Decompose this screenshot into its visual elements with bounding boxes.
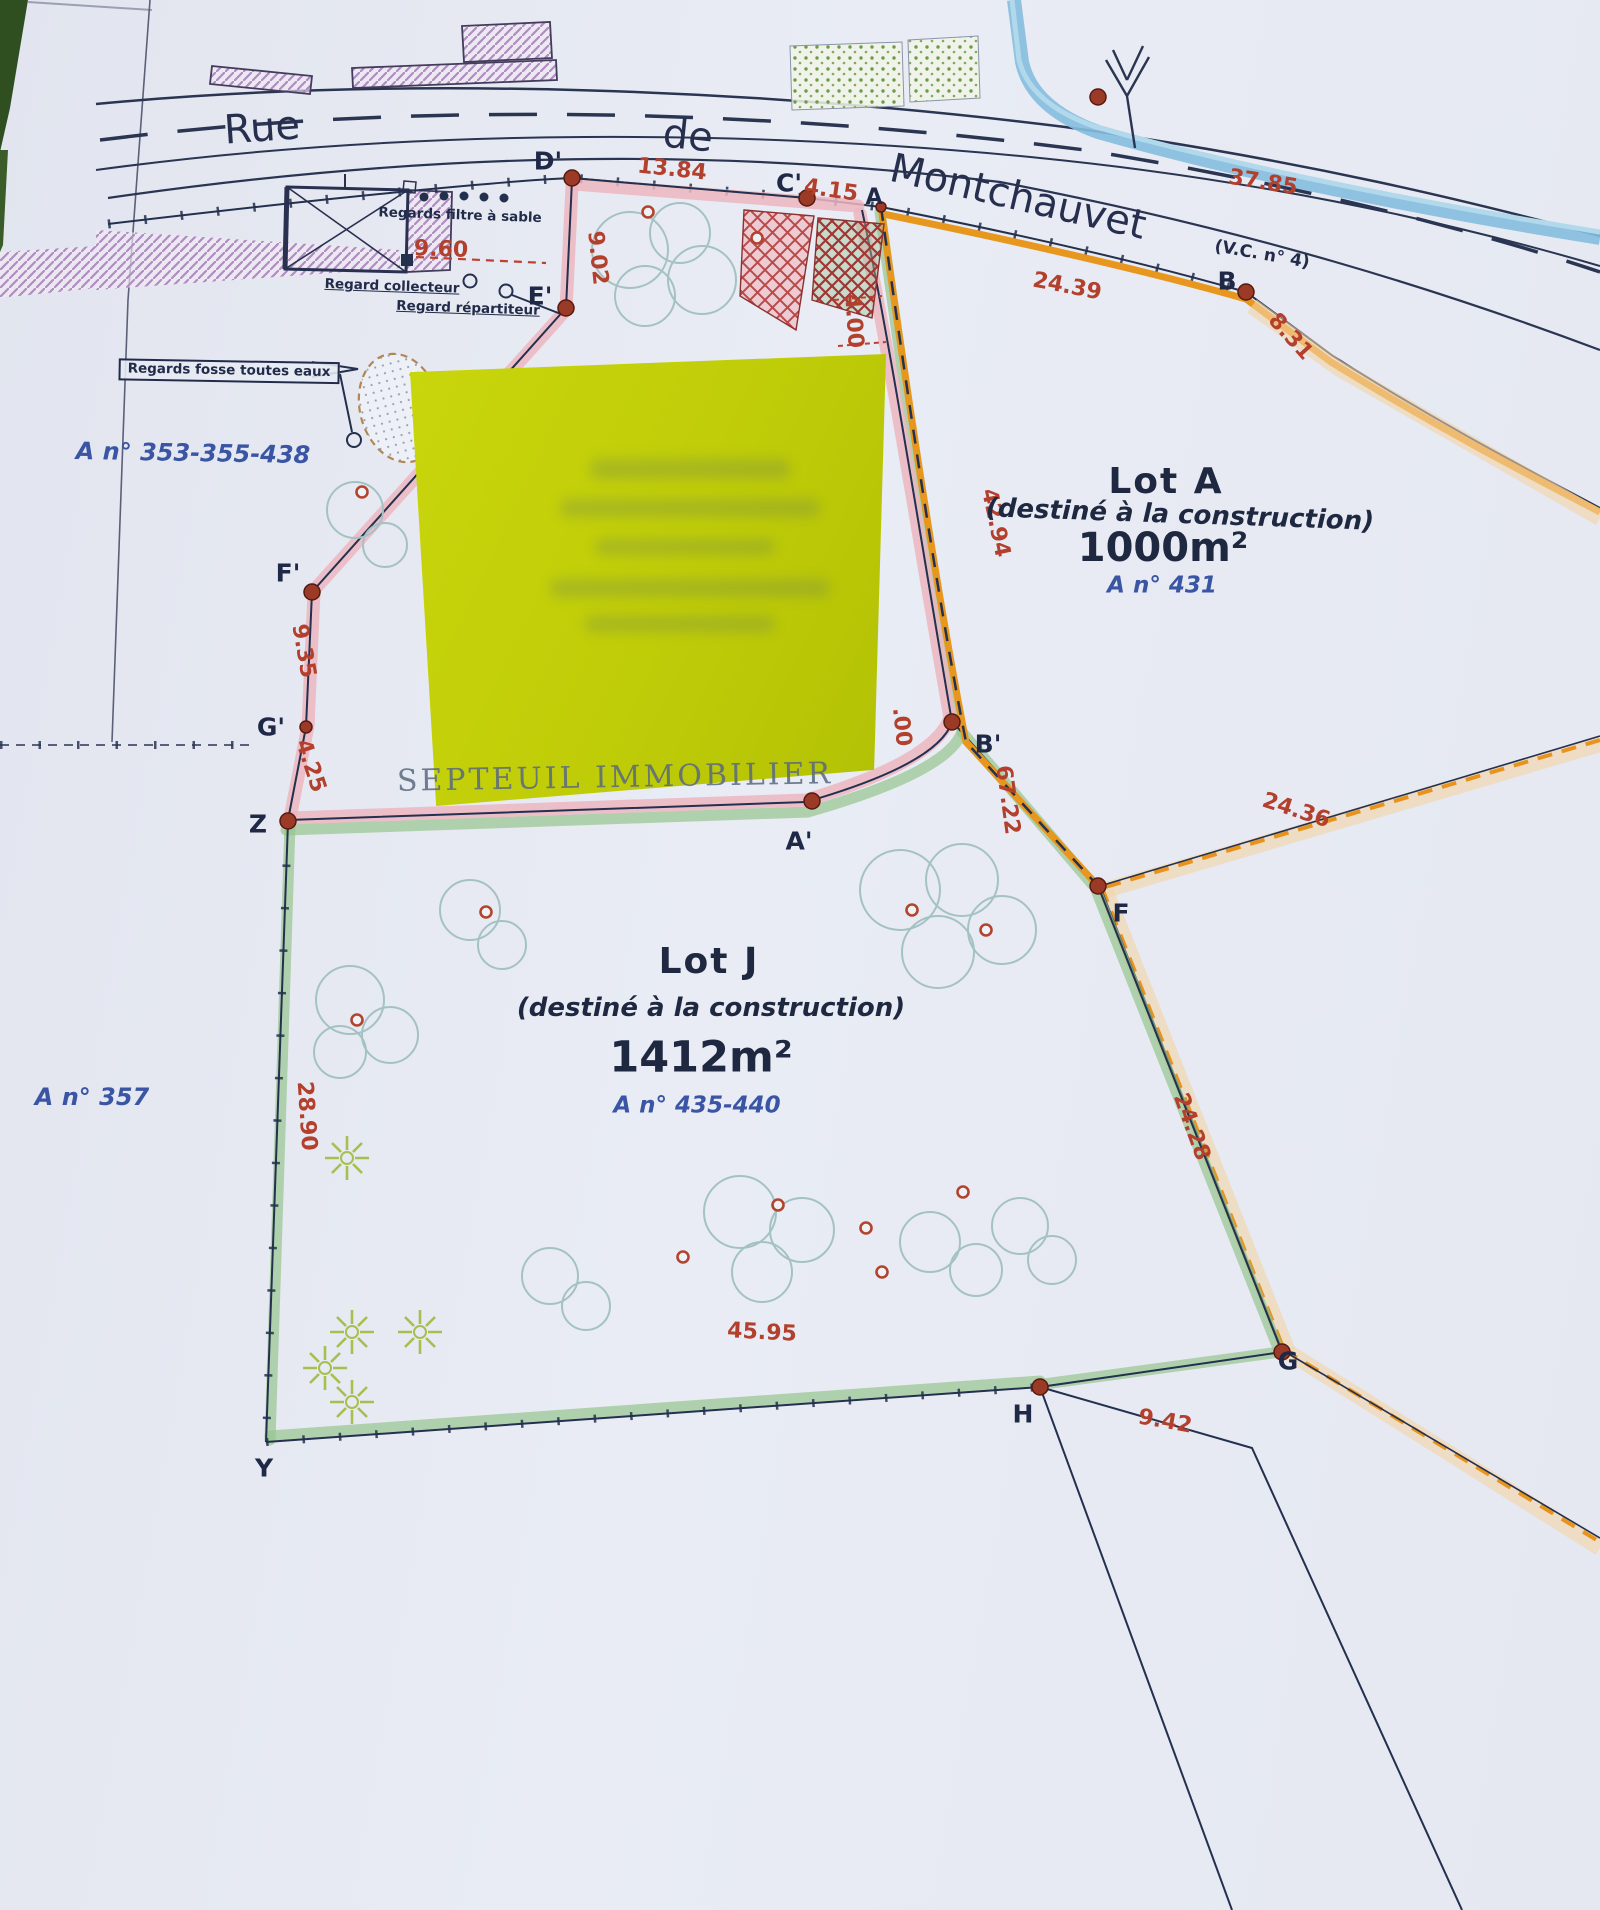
site-plan-drawing [0,0,1600,1910]
vegetation-dot-block [908,36,980,102]
plan-photo: RuedeMontchauvet(V.C. n° 4)D'C'ABE'F'G'Z… [0,0,1600,1910]
lot-a-orange-boundary [883,214,1600,512]
note-bleed-text [595,539,775,555]
photo-background-grass [0,0,152,252]
note-bleed-text [560,499,820,517]
vegetation-dot-block [790,42,904,110]
note-bleed-text [550,579,830,597]
bottom-right-boundaries [1040,1387,1462,1910]
lot-a-west-boundary [881,207,1098,886]
crosshatch-patches [740,210,884,330]
yellow-sticky-note [410,354,886,806]
note-bleed-text [585,616,775,632]
ferns [303,1136,442,1424]
note-bleed-text [590,459,790,479]
paper-and-boundary-lines [0,0,254,745]
